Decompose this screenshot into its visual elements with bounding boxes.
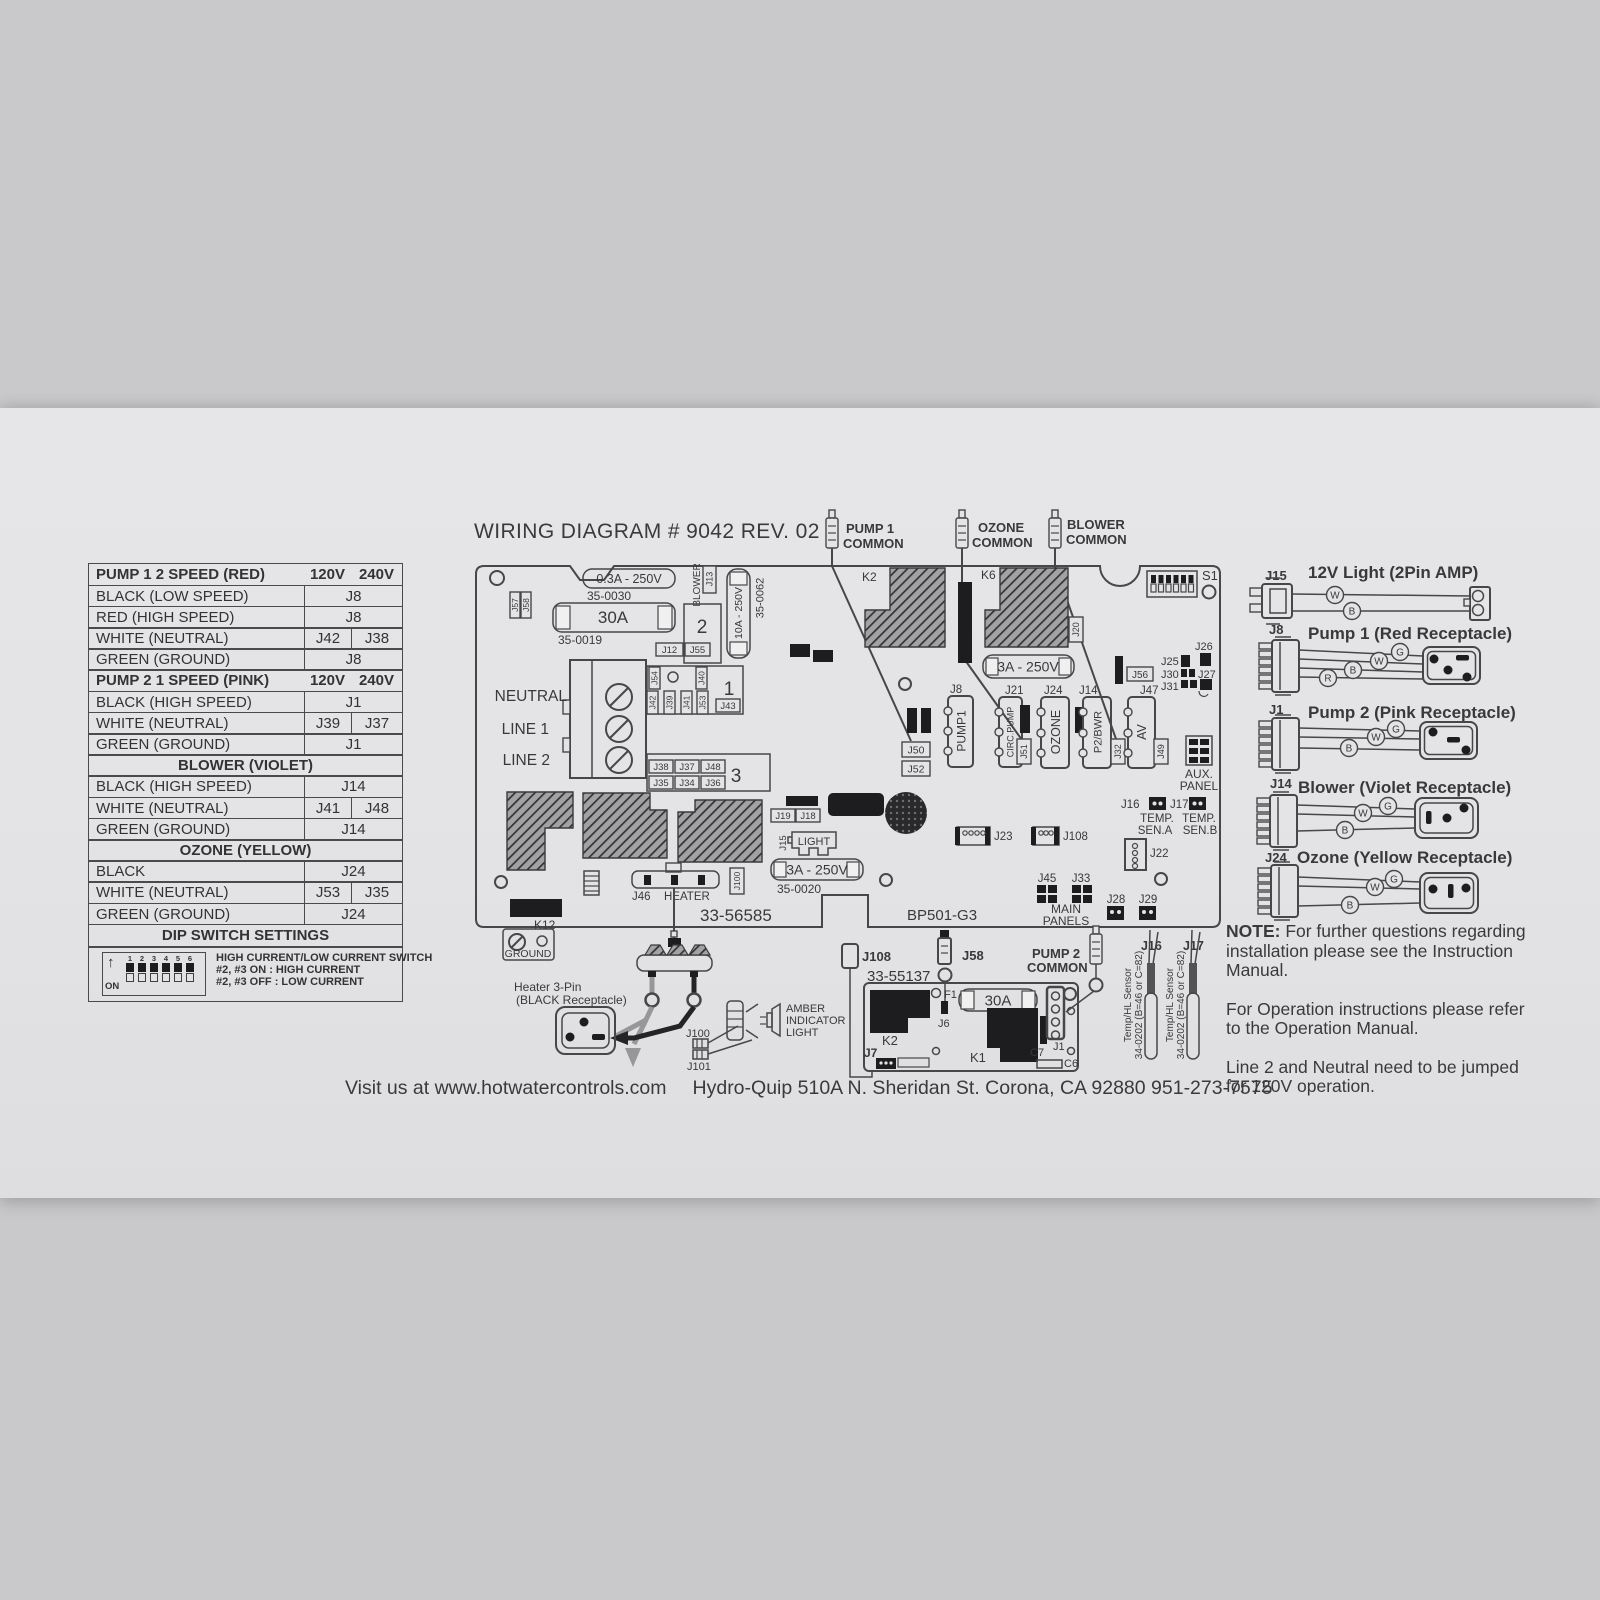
svg-text:J20: J20: [1071, 622, 1081, 637]
table-header-blower: BLOWER (VIOLET): [88, 754, 403, 777]
pcb-diagram: PUMP 1 COMMON OZONE COMMON BLOWER COMMON…: [460, 495, 1230, 1085]
heater-receptacle: [556, 1007, 615, 1054]
table-row: WHITE (NEUTRAL)J53J35: [88, 881, 403, 904]
jack-label-j12: J12: [656, 643, 683, 656]
svg-text:COMMON: COMMON: [1027, 960, 1088, 975]
connector-av: AV: [1124, 697, 1155, 768]
svg-text:J35: J35: [653, 778, 668, 789]
k2-label: K2: [862, 570, 877, 584]
j45-connector: [1037, 885, 1057, 903]
svg-text:LIGHT: LIGHT: [786, 1027, 819, 1039]
legend-title-pump2: Pump 2 (Pink Receptacle): [1308, 703, 1516, 722]
jack-label-j42: J42: [647, 691, 658, 714]
svg-text:J49: J49: [1156, 744, 1166, 759]
svg-text:OZONE: OZONE: [1049, 710, 1063, 754]
sub-fuse-30a: 30A: [959, 989, 1037, 1011]
svg-text:PUMP1: PUMP1: [955, 710, 969, 752]
blower-common-plug: [1049, 510, 1061, 566]
svg-text:J51: J51: [1019, 744, 1029, 759]
svg-text:G: G: [1390, 875, 1398, 886]
fuse-10a-part: 35-0062: [755, 578, 767, 618]
table-header-pump1: PUMP 1 2 SPEED (RED)120V240V: [88, 563, 403, 586]
svg-text:35-0019: 35-0019: [558, 633, 602, 647]
j22-connector: [1125, 839, 1146, 870]
legend-j14: J14: [1270, 776, 1292, 791]
svg-text:(BLACK Receptacle): (BLACK Receptacle): [516, 993, 627, 1007]
svg-text:W: W: [1371, 733, 1381, 744]
svg-text:B: B: [1347, 901, 1354, 912]
svg-text:Temp/HL Sensor: Temp/HL Sensor: [1123, 967, 1134, 1042]
sub-c6-label: C6: [1064, 1058, 1078, 1070]
table-row: GREEN (GROUND)J1: [88, 733, 403, 756]
wire-g: G: [1388, 721, 1405, 738]
svg-text:COMMON: COMMON: [972, 535, 1033, 550]
jack-label-j18: J18: [796, 809, 820, 822]
svg-text:B: B: [1350, 666, 1357, 677]
svg-text:G: G: [1384, 802, 1392, 813]
svg-text:J42: J42: [648, 695, 658, 709]
jack-label-j51: J51: [1017, 739, 1031, 764]
svg-text:J37: J37: [679, 762, 694, 773]
note-operation: For Operation instructions please refer …: [1226, 1000, 1528, 1039]
ozone-common-label: OZONE: [978, 520, 1025, 535]
pump2-common-label: PUMP 2: [1032, 946, 1080, 961]
svg-text:J18: J18: [800, 811, 815, 822]
dip-switch-drawing: ↑ ON 1 2 3 4 5 6: [102, 952, 206, 996]
table-header-dip: DIP SWITCH SETTINGS: [88, 924, 403, 947]
connector-ozone: OZONE: [1037, 697, 1069, 768]
jack-label-j35: J35: [649, 776, 673, 789]
svg-text:SEN.B: SEN.B: [1183, 825, 1218, 837]
svg-text:W: W: [1370, 883, 1380, 894]
fuse-3a-light: 3A - 250V 35-0020: [771, 859, 863, 896]
legend-title-12v-light: 12V Light (2Pin AMP): [1308, 563, 1478, 582]
wire-w: W: [1367, 879, 1384, 896]
sub-k1-label: K1: [970, 1050, 986, 1065]
mount-hole: [1064, 988, 1076, 1000]
j28-connector: [1107, 906, 1124, 920]
connector-p2bwr: P2/BWR: [1079, 697, 1111, 768]
jack-label-j34: J34: [675, 776, 699, 789]
svg-text:W: W: [1330, 591, 1340, 602]
svg-text:P2/BWR: P2/BWR: [1093, 711, 1105, 753]
jack-label-j37: J37: [675, 760, 699, 773]
j23-connector: [955, 827, 990, 845]
j21-label: J21: [1005, 685, 1024, 697]
pump1-common-label: PUMP 1: [846, 521, 894, 536]
j101-label: J101: [687, 1061, 711, 1073]
svg-text:W: W: [1374, 657, 1384, 668]
footer-website: Visit us at www.hotwatercontrols.com: [345, 1077, 667, 1100]
table-row: WHITE (NEUTRAL)J41J48: [88, 797, 403, 820]
ozone-common-plug: [956, 510, 968, 582]
board-model: BP501-G3: [907, 907, 977, 924]
relay-k12: [510, 899, 562, 917]
light-connector: LIGHT: [788, 832, 836, 855]
dip-switches: 1 2 3 4 5 6: [124, 954, 196, 982]
svg-text:CIRC.PUMP: CIRC.PUMP: [1006, 707, 1016, 758]
jack-label-j58: J58: [521, 592, 531, 618]
table-row: RED (HIGH SPEED)J8: [88, 606, 403, 629]
table-row: WHITE (NEUTRAL)J42J38: [88, 627, 403, 650]
svg-text:J25: J25: [1161, 656, 1179, 668]
svg-text:J50: J50: [908, 745, 925, 757]
svg-text:J41: J41: [682, 695, 692, 709]
fuse-03a: 0.3A - 250V 35-0030: [583, 569, 675, 603]
j17-label: J17: [1170, 799, 1189, 811]
jack-label-j100v: J100: [730, 868, 744, 894]
sub-j7-connector: [876, 1058, 929, 1069]
mount-hole: [1203, 586, 1216, 599]
table-row: BLACK (HIGH SPEED)J1: [88, 691, 403, 714]
svg-text:INDICATOR: INDICATOR: [786, 1015, 846, 1027]
j108-connector: [1031, 827, 1059, 845]
board-part-number: 33-56585: [700, 906, 772, 925]
svg-text:J13: J13: [705, 572, 715, 587]
mount-hole: [1068, 1048, 1075, 1055]
j47-label: J47: [1140, 685, 1159, 697]
svg-text:3: 3: [731, 766, 742, 787]
sub-f1-label: F1: [944, 989, 957, 1001]
svg-text:34-0202 (B=46 or C=82): 34-0202 (B=46 or C=82): [1134, 951, 1145, 1059]
table-row: GREEN (GROUND)J8: [88, 648, 403, 671]
j16-connector: [1149, 797, 1166, 810]
svg-text:35-0020: 35-0020: [777, 882, 821, 896]
svg-text:1: 1: [724, 679, 735, 700]
relay-k2: [865, 568, 945, 647]
svg-text:TEMP.: TEMP.: [1182, 813, 1216, 825]
wire-w: W: [1371, 653, 1388, 670]
yellow-receptacle-icon: [1420, 873, 1478, 913]
svg-text:W: W: [1358, 809, 1368, 820]
up-arrow-icon: ↑: [107, 954, 115, 971]
svg-text:J48: J48: [705, 762, 720, 773]
svg-text:J100: J100: [732, 872, 742, 891]
j14-label: J14: [1079, 685, 1098, 697]
j33-connector: [1072, 885, 1092, 903]
svg-text:J39: J39: [665, 695, 675, 709]
j23-label: J23: [994, 831, 1013, 843]
wire-r: R: [1320, 670, 1337, 687]
jack-label-j13: J13: [703, 566, 716, 593]
sub-j6-label: J6: [938, 1018, 950, 1030]
j45-label: J45: [1038, 873, 1057, 885]
s1-dip-switch: [1147, 571, 1197, 597]
buzzer: [885, 792, 927, 834]
amber-indicator-label: AMBER: [786, 1003, 825, 1015]
wire-g: G: [1392, 644, 1409, 661]
heater-3pin-label: Heater 3-Pin: [514, 980, 581, 994]
wire-w: W: [1355, 805, 1372, 822]
transformer: [583, 793, 667, 858]
footer: Visit us at www.hotwatercontrols.com Hyd…: [345, 1077, 1272, 1100]
table-row: WHITE (NEUTRAL)J39J37: [88, 712, 403, 735]
svg-text:J43: J43: [720, 701, 735, 712]
svg-text:J56: J56: [1132, 670, 1149, 681]
svg-text:34-0202 (B=46 or C=82): 34-0202 (B=46 or C=82): [1176, 951, 1187, 1059]
svg-text:COMMON: COMMON: [843, 536, 904, 551]
amp-socket-icon: [1464, 587, 1490, 620]
svg-text:G: G: [1392, 725, 1400, 736]
component-bar: [958, 582, 972, 663]
down-arrow: [625, 1048, 641, 1067]
j100-label: J100: [686, 1028, 710, 1040]
j29-connector: [1139, 906, 1156, 920]
amber-indicator-light-icon: [727, 1001, 780, 1040]
jack-label-j39: J39: [664, 691, 675, 714]
violet-receptacle-icon: [1415, 798, 1478, 838]
jack-label-j32: J32: [1111, 739, 1125, 764]
svg-text:Temp/HL Sensor: Temp/HL Sensor: [1165, 967, 1176, 1042]
power-terminal-block: [563, 660, 646, 778]
svg-text:30A: 30A: [985, 993, 1012, 1010]
jack-label-j57: J57: [510, 592, 520, 618]
relay-k6: [985, 568, 1068, 647]
jack-label-j41: J41: [681, 691, 692, 714]
legend-title-pump1: Pump 1 (Red Receptacle): [1308, 624, 1512, 643]
component-bar: [1020, 705, 1030, 733]
sub-j7-label: J7: [864, 1046, 878, 1060]
svg-text:35-0030: 35-0030: [587, 589, 631, 603]
wire-b: B: [1337, 822, 1354, 839]
jumper-cluster: J26 J25 J30 J27 J31: [1161, 641, 1216, 696]
wire-g: G: [1380, 798, 1397, 815]
table-row: BLACK (HIGH SPEED)J14: [88, 775, 403, 798]
jack-label-j55: J55: [685, 643, 710, 656]
svg-text:J54: J54: [650, 671, 660, 685]
sub-j58-label: J58: [962, 948, 984, 963]
component-chip: [828, 793, 884, 816]
svg-text:B: B: [1346, 744, 1353, 755]
component-bar: [1115, 656, 1123, 684]
wiring-table: PUMP 1 2 SPEED (RED)120V240V BLACK (LOW …: [88, 565, 403, 947]
pink-receptacle-icon: [1420, 722, 1477, 759]
svg-text:J40: J40: [697, 671, 707, 685]
dip-switch-notes: HIGH CURRENT/LOW CURRENT SWITCH #2, #3 O…: [216, 952, 432, 989]
svg-text:R: R: [1324, 674, 1331, 685]
svg-text:PANEL: PANEL: [1180, 779, 1219, 793]
svg-text:J58: J58: [521, 598, 531, 612]
sub-j108-label: J108: [862, 949, 891, 964]
neutral-label: NEUTRAL: [495, 688, 568, 705]
mount-hole: [933, 1048, 940, 1055]
svg-text:J55: J55: [690, 645, 705, 656]
table-row: BLACKJ24: [88, 860, 403, 883]
j16-label: J16: [1121, 799, 1140, 811]
j28-label: J28: [1107, 894, 1126, 906]
jack-label-j19: J19: [771, 809, 795, 822]
sub-j6: [941, 1001, 948, 1014]
svg-text:B: B: [1342, 826, 1349, 837]
dip-on-label: ON: [105, 981, 119, 992]
sub-c7-label: C7: [1030, 1047, 1044, 1059]
svg-text:SEN.A: SEN.A: [1138, 825, 1173, 837]
svg-text:J30: J30: [1161, 669, 1179, 681]
svg-text:3A - 250V: 3A - 250V: [786, 862, 848, 878]
component-bar: [813, 650, 833, 662]
svg-text:AV: AV: [1135, 723, 1149, 739]
wire-b: B: [1345, 662, 1362, 679]
svg-text:0.3A - 250V: 0.3A - 250V: [596, 572, 662, 586]
legend-title-blower: Blower (Violet Receptacle): [1298, 778, 1511, 797]
s1-label: S1: [1202, 568, 1218, 583]
ground-label: GROUND: [505, 948, 552, 960]
sub-relay-k2: [870, 990, 930, 1033]
heater-label: HEATER: [664, 891, 710, 903]
j29-label: J29: [1139, 894, 1158, 906]
svg-text:J38: J38: [653, 762, 668, 773]
component-bar: [907, 708, 917, 733]
red-receptacle-icon: [1423, 647, 1480, 684]
connector-pump1: PUMP1: [944, 696, 973, 767]
sub-j1-label: J1: [1053, 1041, 1065, 1053]
k6-label: K6: [981, 568, 996, 582]
transformer: [507, 792, 573, 870]
jack-label-j54: J54: [649, 667, 660, 689]
svg-text:10A - 250V: 10A - 250V: [733, 587, 745, 639]
jack-label-j49: J49: [1154, 739, 1168, 764]
wire-g: G: [1386, 871, 1403, 888]
transformer: [678, 800, 762, 862]
svg-text:G: G: [1396, 648, 1404, 659]
jack-label-j48: J48: [701, 760, 725, 773]
svg-text:30A: 30A: [598, 608, 629, 627]
j22-label: J22: [1150, 848, 1169, 860]
fuse-10a: 10A - 250V: [727, 569, 750, 658]
svg-text:3A - 250V: 3A - 250V: [997, 659, 1059, 675]
fuse-30a: 30A 35-0019: [553, 603, 675, 647]
table-header-pump2: PUMP 2 1 SPEED (PINK)120V240V: [88, 669, 403, 692]
j108-label: J108: [1063, 831, 1088, 843]
svg-text:J31: J31: [1161, 681, 1179, 693]
table-row: BLACK (LOW SPEED)J8: [88, 585, 403, 608]
wire-w: W: [1368, 729, 1385, 746]
legend-j15: J15: [1265, 568, 1287, 583]
j101-plug: [693, 1050, 708, 1059]
photo-of-wiring-label: WIRING DIAGRAM # 9042 REV. 02 PUMP 1 2 S…: [0, 0, 1600, 1600]
mount-hole: [490, 571, 504, 585]
line1-label: LINE 1: [502, 721, 549, 738]
svg-text:J52: J52: [908, 764, 925, 776]
svg-text:J57: J57: [510, 598, 520, 612]
mount-hole: [1155, 873, 1167, 885]
j17-connector: [1189, 797, 1206, 810]
footer-address: Hydro-Quip 510A N. Sheridan St. Corona, …: [693, 1077, 1273, 1100]
table-row: GREEN (GROUND)J24: [88, 903, 403, 926]
sub-f1: [932, 989, 941, 998]
line2-label: LINE 2: [503, 752, 550, 769]
note-installation: NOTE: For further questions regarding in…: [1226, 922, 1528, 981]
receptacle-legend: J15 12V Light (2Pin AMP) W B J8 Pump 1 (…: [1230, 540, 1525, 940]
svg-text:J53: J53: [698, 695, 708, 709]
svg-text:J12: J12: [662, 645, 677, 656]
svg-text:B: B: [1349, 607, 1356, 618]
svg-text:J32: J32: [1113, 744, 1123, 759]
jack-label-j53: J53: [697, 691, 708, 714]
legend-j8: J8: [1269, 622, 1283, 637]
component-bar: [790, 644, 810, 657]
jack-label-j50: J50: [902, 742, 930, 757]
legend-title-ozone: Ozone (Yellow Receptacle): [1297, 848, 1512, 867]
wire-b: B: [1344, 603, 1361, 620]
mount-hole: [495, 876, 507, 888]
table-row: GREEN (GROUND)J14: [88, 818, 403, 841]
j33-label: J33: [1072, 873, 1091, 885]
svg-text:J26: J26: [1195, 641, 1213, 653]
jack-label-j52: J52: [902, 761, 930, 776]
svg-text:PANELS: PANELS: [1043, 914, 1089, 928]
svg-text:J36: J36: [705, 778, 720, 789]
jack-label-j20: J20: [1069, 617, 1083, 642]
jack-label-j43: J43: [716, 699, 740, 712]
svg-text:LIGHT: LIGHT: [798, 836, 831, 848]
aux-panel-connector: [1186, 736, 1212, 765]
jack-label-j36: J36: [701, 776, 725, 789]
table-header-ozone: OZONE (YELLOW): [88, 839, 403, 862]
wire-w: W: [1327, 587, 1344, 604]
wire-b: B: [1342, 897, 1359, 914]
jack-label-j40: J40: [696, 667, 707, 689]
svg-text:COMMON: COMMON: [1066, 532, 1127, 547]
svg-text:TEMP.: TEMP.: [1140, 813, 1174, 825]
pump1-common-plug: [826, 510, 838, 566]
mount-hole: [899, 678, 911, 690]
sub-j1-connector: [1047, 987, 1064, 1039]
mount-hole: [880, 874, 892, 886]
j46-heater-connector: [632, 863, 719, 888]
j46-label: J46: [632, 891, 651, 903]
blower-common-label: BLOWER: [1067, 517, 1125, 532]
svg-text:J19: J19: [775, 811, 790, 822]
fuse-3a-center: 3A - 250V: [983, 655, 1074, 678]
j100-plug: [693, 1039, 708, 1048]
component-bar: [921, 708, 931, 733]
svg-text:2: 2: [697, 617, 708, 638]
blower-vertical-label: BLOWER: [692, 563, 703, 606]
component-bar: [786, 796, 818, 806]
sub-c6: [1037, 1060, 1062, 1068]
jack-label-j38: J38: [649, 760, 673, 773]
j8-label: J8: [950, 684, 962, 696]
dip-switch-settings: ↑ ON 1 2 3 4 5 6 HIGH CURRENT/LOW CURREN…: [88, 947, 403, 1002]
wire-b: B: [1341, 740, 1358, 757]
jack-label-j56: J56: [1127, 667, 1153, 681]
sub-k2-label: K2: [882, 1033, 898, 1048]
svg-text:J34: J34: [679, 778, 694, 789]
j24-label: J24: [1044, 685, 1063, 697]
amp-2pin-connector-icon: [1250, 578, 1292, 624]
